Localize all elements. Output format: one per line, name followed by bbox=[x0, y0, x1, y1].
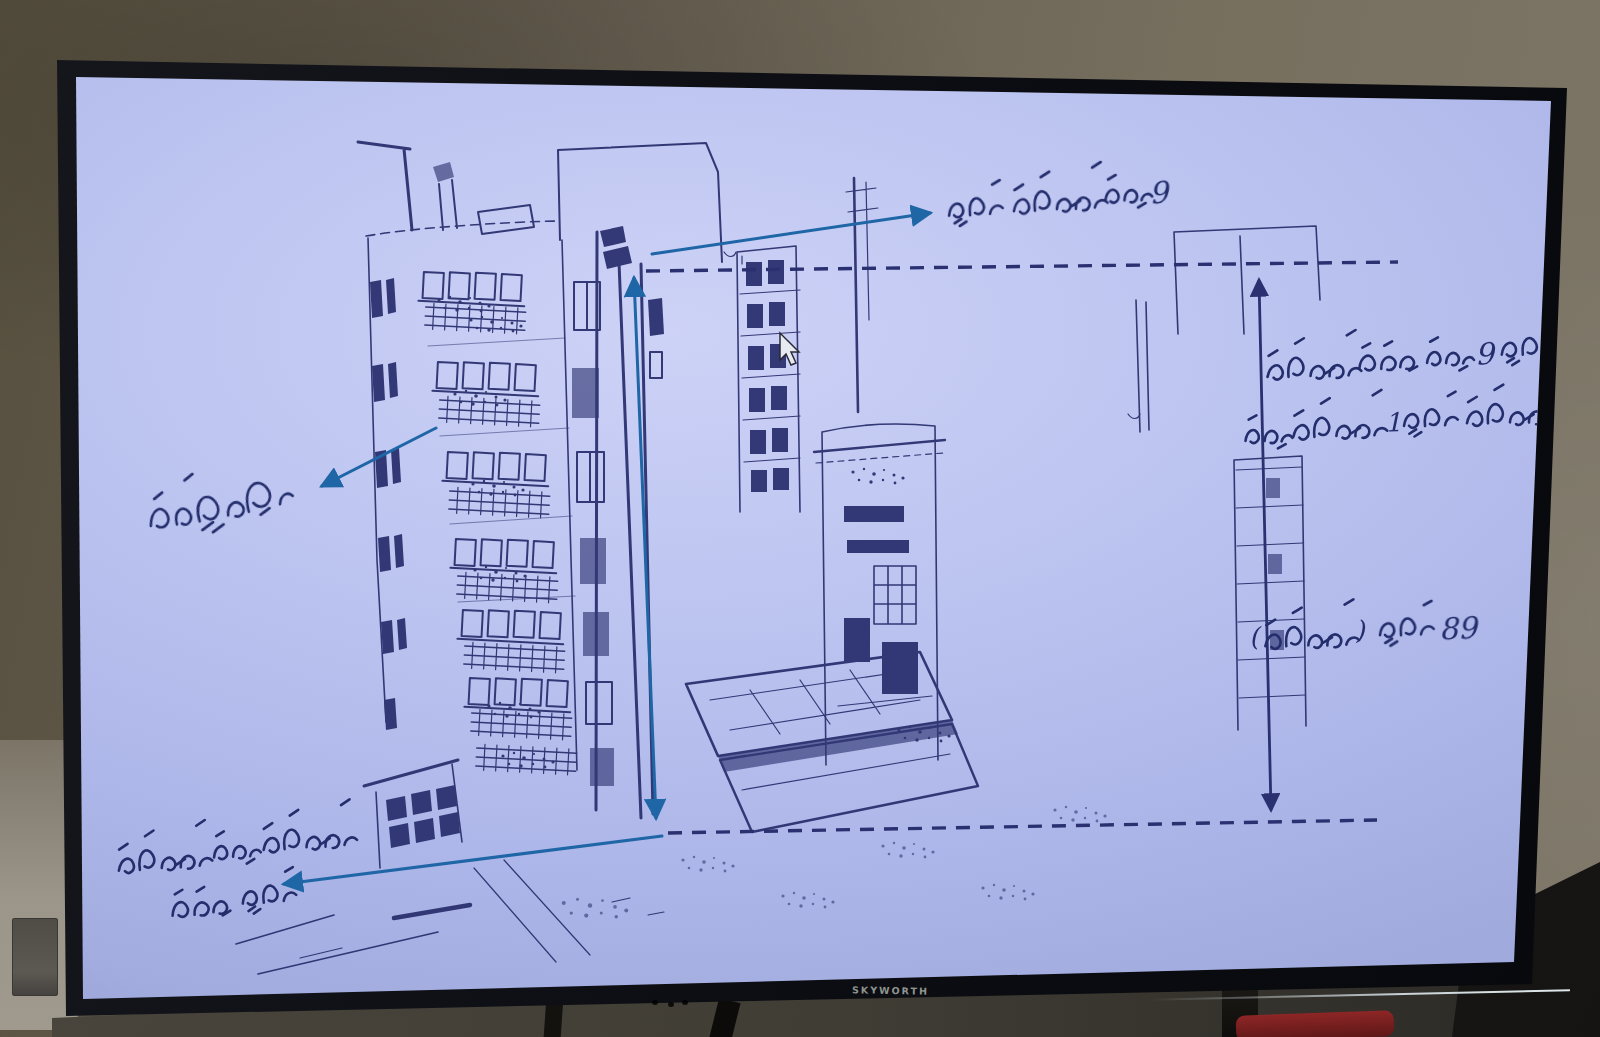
tv-stand-strut bbox=[709, 998, 740, 1037]
light-switch bbox=[12, 918, 58, 996]
annotation-top-floor: 9 bbox=[946, 157, 1172, 226]
tv-brand-logo: SKYWORTH bbox=[852, 984, 929, 996]
annotation-balconies bbox=[143, 457, 296, 542]
paren-close: ) bbox=[1354, 615, 1367, 645]
building-elevation-drawing: 9 9 1 ( ) 89 bbox=[0, 0, 1600, 1037]
tv-screen: 9 9 1 ( ) 89 bbox=[0, 0, 1600, 1037]
annotations: 9 9 1 ( ) 89 bbox=[114, 157, 1561, 920]
one-foot-number: 1 bbox=[1384, 407, 1402, 438]
paren-open: ( bbox=[1248, 621, 1263, 652]
floor-height-number: 9 bbox=[1474, 336, 1498, 372]
annotation-roof-note-line1 bbox=[114, 799, 358, 875]
annotation-right-note-line2: 1 bbox=[1243, 376, 1561, 450]
photo-of-tv-scene: 9 9 1 ( ) 89 bbox=[0, 0, 1600, 1037]
stand-screw bbox=[668, 1002, 674, 1007]
arrow-to-top-floor-label bbox=[652, 213, 930, 254]
annotation-roof-note-line2 bbox=[169, 867, 297, 921]
stand-screw bbox=[682, 1000, 688, 1005]
floor-number: 9 bbox=[1148, 174, 1172, 210]
arrow-to-roof-note bbox=[284, 836, 662, 884]
total-height-number: 89 bbox=[1438, 610, 1481, 647]
building-sketch bbox=[236, 142, 1320, 974]
red-object bbox=[1236, 1010, 1395, 1037]
stand-screw bbox=[652, 1000, 658, 1005]
annotation-right-note-line1: 9 bbox=[1266, 320, 1557, 381]
